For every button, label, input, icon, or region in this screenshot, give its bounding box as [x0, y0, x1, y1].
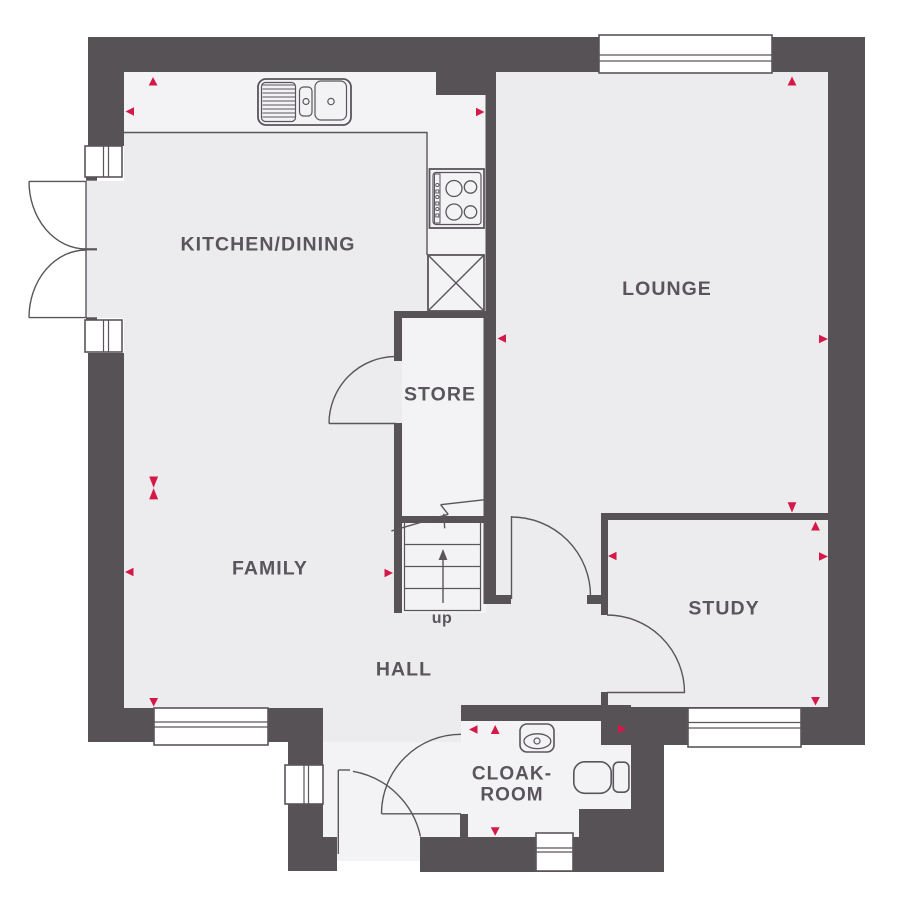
svg-text:FAMILY: FAMILY: [232, 558, 308, 580]
svg-text:STORE: STORE: [404, 384, 476, 406]
svg-text:CLOAK-: CLOAK-: [472, 764, 552, 785]
svg-text:STUDY: STUDY: [688, 598, 759, 620]
svg-text:HALL: HALL: [376, 659, 432, 681]
svg-text:LOUNGE: LOUNGE: [622, 278, 712, 300]
svg-text:KITCHEN/DINING: KITCHEN/DINING: [180, 234, 355, 256]
svg-text:ROOM: ROOM: [480, 785, 543, 806]
svg-text:up: up: [432, 610, 453, 627]
